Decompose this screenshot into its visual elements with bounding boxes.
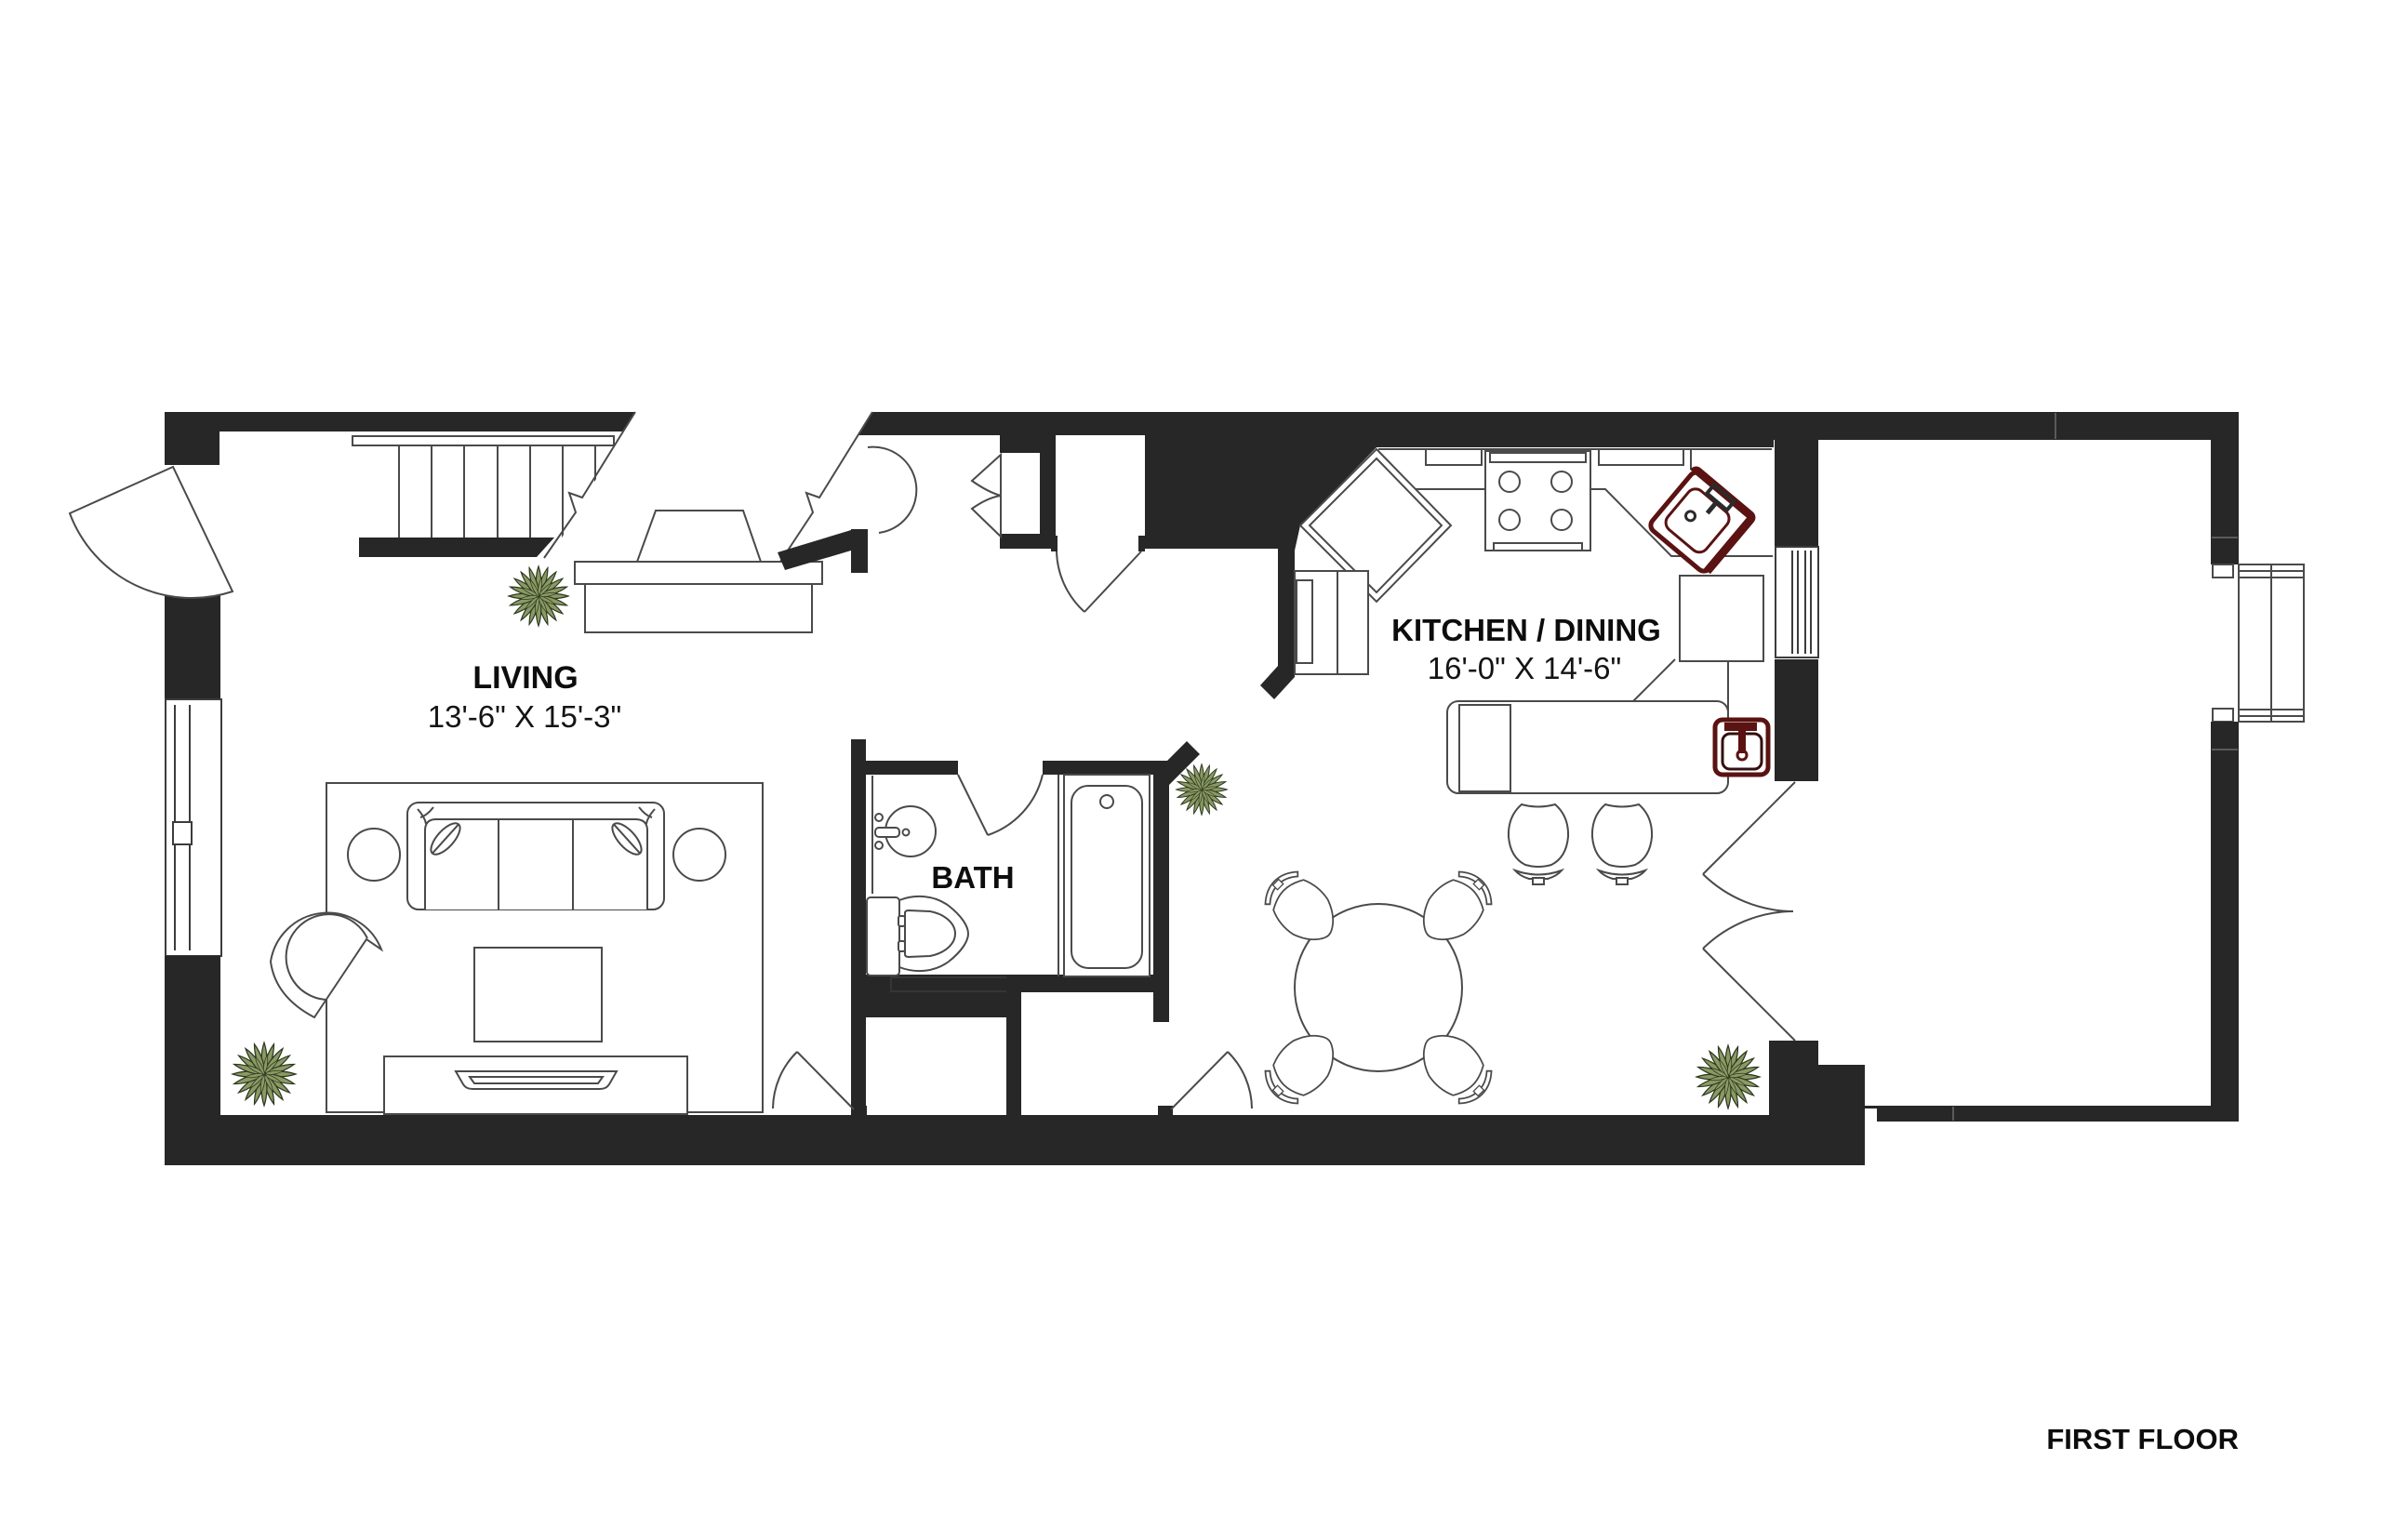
- svg-text:BATH: BATH: [931, 860, 1014, 895]
- svg-text:FIRST FLOOR: FIRST FLOOR: [2046, 1423, 2239, 1455]
- svg-text:LIVING: LIVING: [472, 660, 578, 696]
- svg-text:KITCHEN / DINING: KITCHEN / DINING: [1391, 613, 1661, 647]
- svg-text:13'-6" X 15'-3": 13'-6" X 15'-3": [428, 699, 621, 734]
- svg-text:16'-0" X 14'-6": 16'-0" X 14'-6": [1428, 651, 1621, 685]
